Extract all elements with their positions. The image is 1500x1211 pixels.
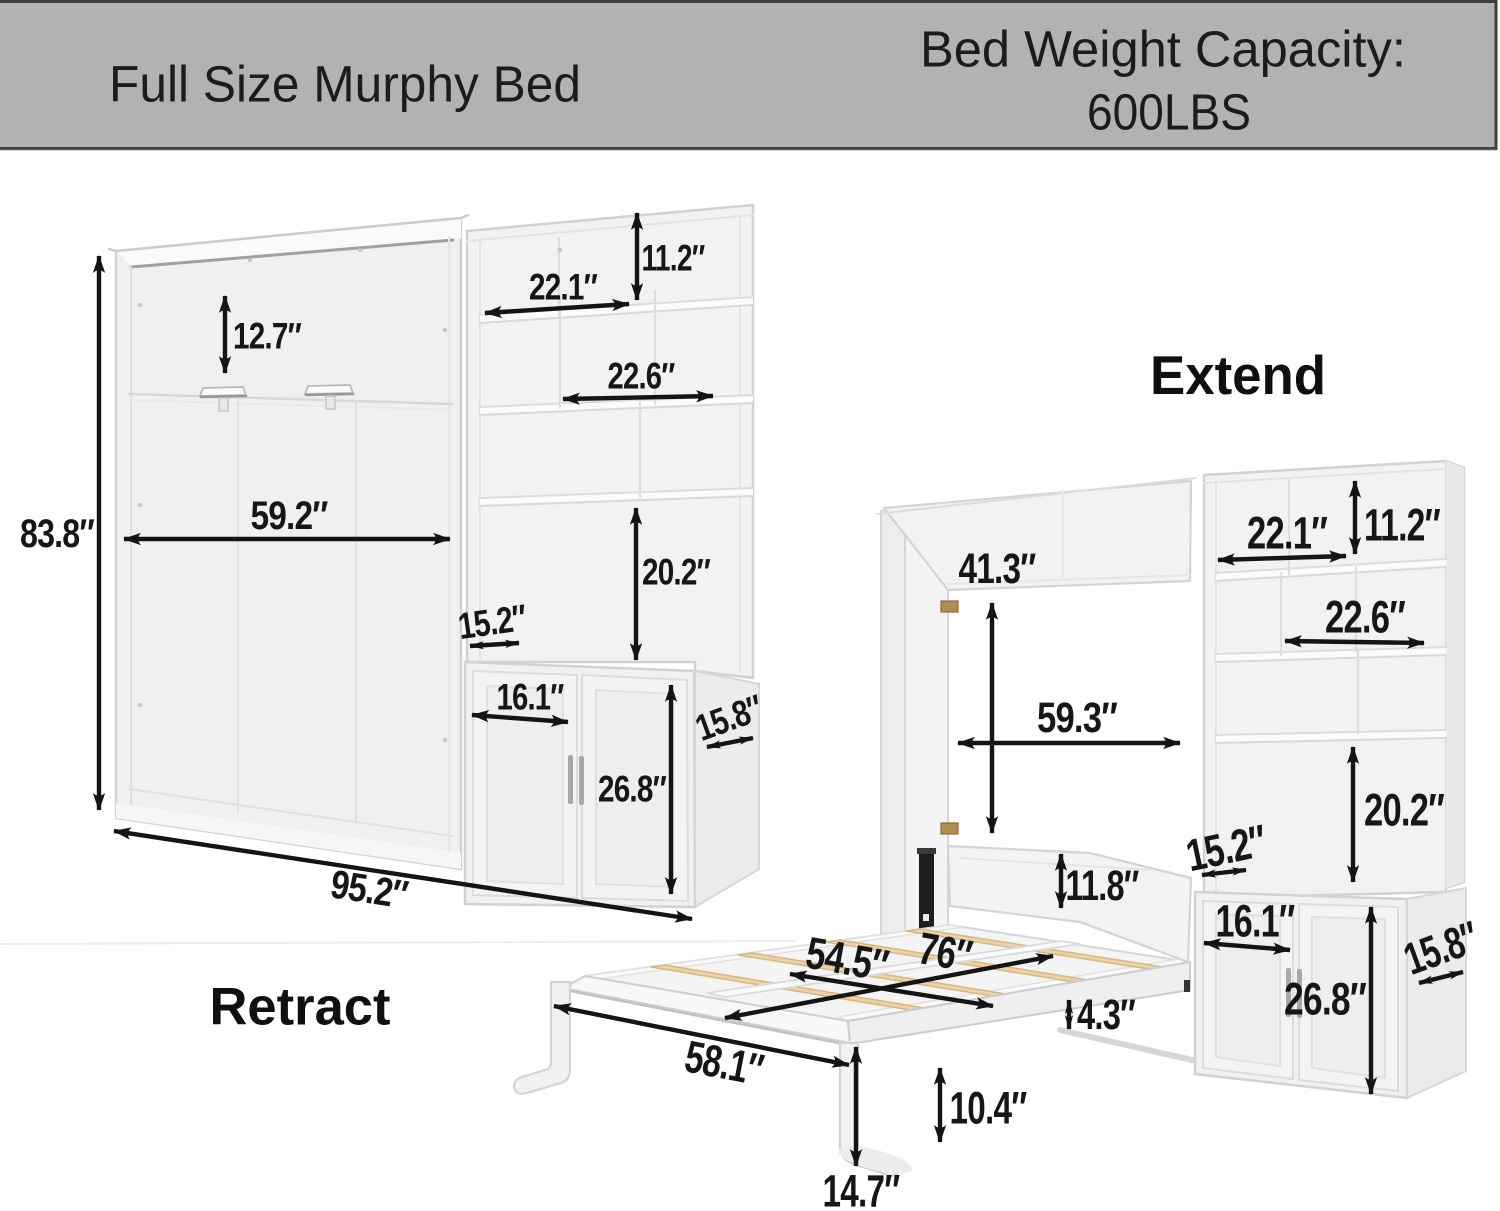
svg-text:59.2″: 59.2″ xyxy=(251,494,329,538)
svg-text:Full Size Murphy Bed: Full Size Murphy Bed xyxy=(109,56,581,113)
svg-text:4.3″: 4.3″ xyxy=(1077,991,1135,1039)
svg-text:11.2″: 11.2″ xyxy=(642,238,706,279)
svg-text:20.2″: 20.2″ xyxy=(642,552,711,593)
svg-text:26.8″: 26.8″ xyxy=(1284,974,1366,1025)
svg-text:22.6″: 22.6″ xyxy=(1325,592,1405,643)
svg-text:10.4″: 10.4″ xyxy=(950,1083,1027,1134)
svg-text:76″: 76″ xyxy=(914,922,975,981)
svg-text:83.8″: 83.8″ xyxy=(20,512,95,556)
svg-text:16.1″: 16.1″ xyxy=(497,677,565,718)
svg-text:16.1″: 16.1″ xyxy=(1216,896,1295,947)
svg-text:22.1″: 22.1″ xyxy=(1247,508,1327,559)
svg-text:Retract: Retract xyxy=(210,978,391,1037)
svg-text:12.7″: 12.7″ xyxy=(233,316,302,357)
svg-text:600LBS: 600LBS xyxy=(1087,84,1251,141)
svg-text:22.6″: 22.6″ xyxy=(608,356,676,397)
svg-text:Bed Weight Capacity:: Bed Weight Capacity: xyxy=(920,21,1406,78)
svg-text:26.8″: 26.8″ xyxy=(598,769,667,810)
svg-text:20.2″: 20.2″ xyxy=(1364,785,1444,836)
svg-text:59.3″: 59.3″ xyxy=(1037,694,1117,742)
svg-text:11.8″: 11.8″ xyxy=(1066,862,1139,910)
svg-text:11.2″: 11.2″ xyxy=(1364,500,1440,551)
svg-text:41.3″: 41.3″ xyxy=(959,545,1036,593)
svg-text:Extend: Extend xyxy=(1150,344,1326,406)
svg-text:14.7″: 14.7″ xyxy=(823,1166,900,1211)
svg-text:22.1″: 22.1″ xyxy=(529,267,598,308)
